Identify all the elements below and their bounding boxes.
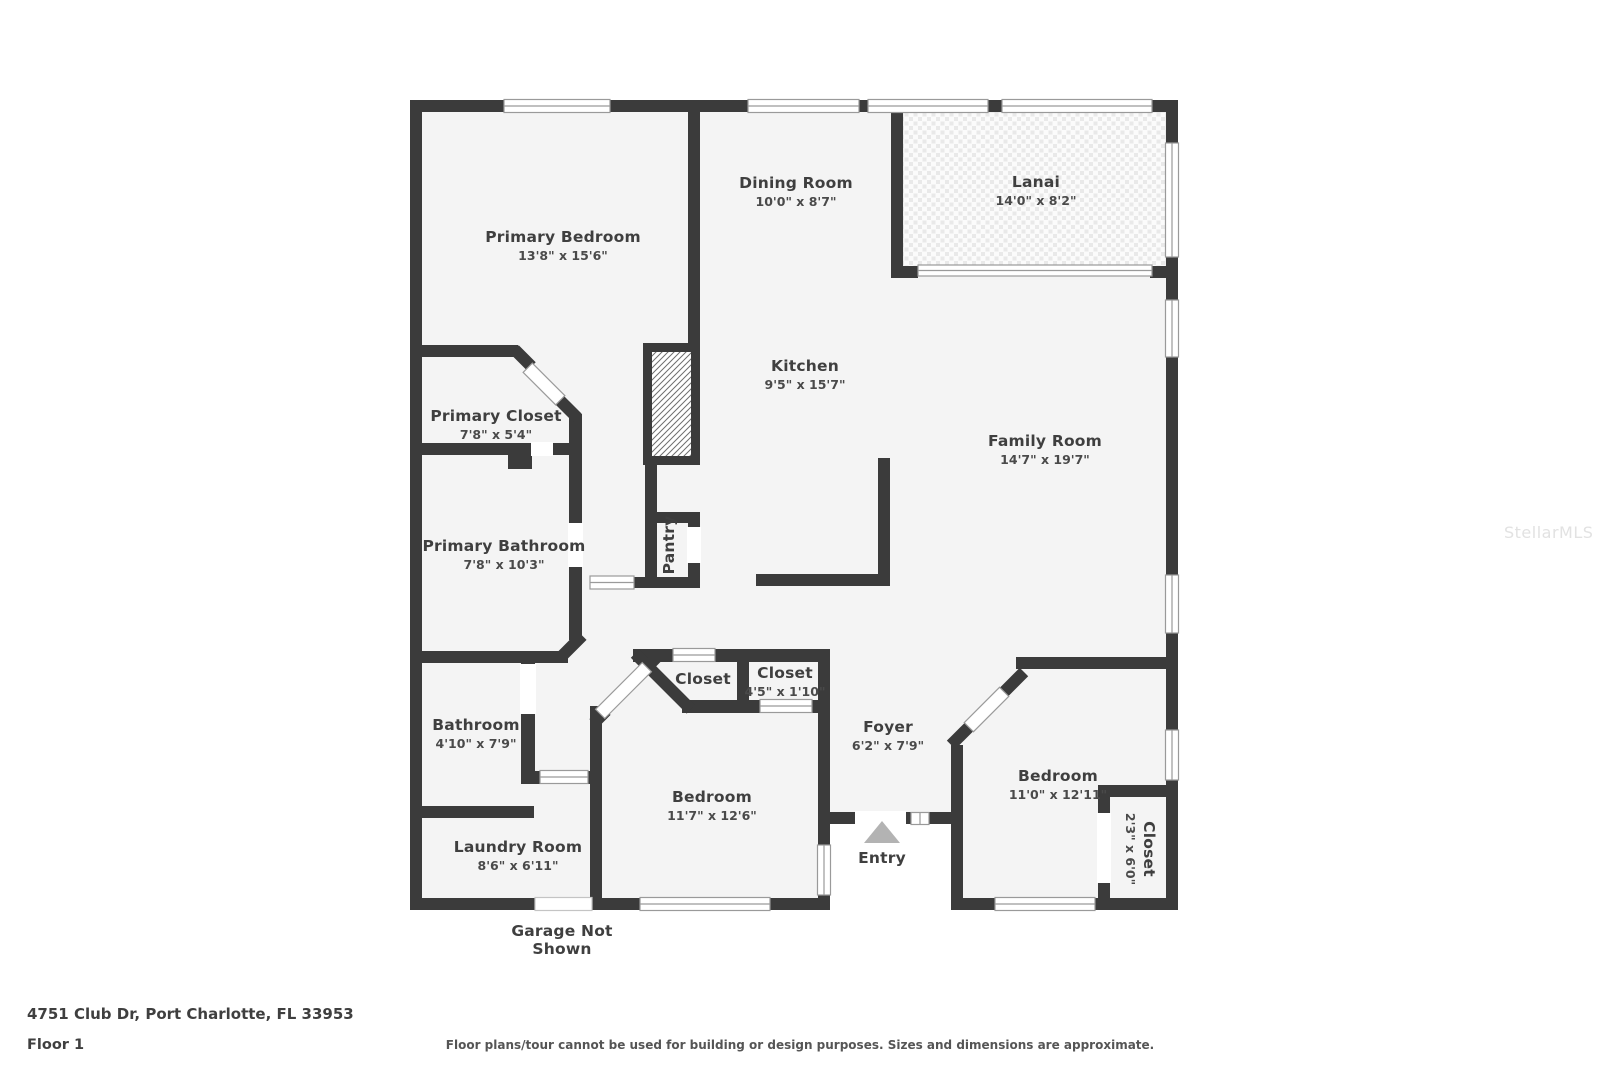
garage-note: Garage Not Shown [511,923,612,959]
room-dims: 7'8" x 10'3" [422,558,585,572]
room-label-foyer: Foyer 6'2" x 7'9" [852,719,924,753]
room-label-laundry-room: Laundry Room 8'6" x 6'11" [454,839,582,873]
hatched-box [643,343,700,465]
disclaimer-text: Floor plans/tour cannot be used for buil… [0,1038,1600,1052]
window [640,898,770,911]
room-dims: 14'7" x 19'7" [988,453,1102,467]
window [1002,100,1152,113]
room-dims: 6'2" x 7'9" [852,739,924,753]
window [1166,730,1179,780]
room-label-primary-closet: Primary Closet 7'8" x 5'4" [430,408,561,442]
room-name: Bedroom [667,789,757,807]
room-name: Bedroom [1009,768,1107,786]
room-label-primary-bedroom: Primary Bedroom 13'8" x 15'6" [485,229,641,263]
room-dims: 8'6" x 6'11" [454,859,582,873]
entry-text: Entry [858,850,906,868]
room-dims: 13'8" x 15'6" [485,249,641,263]
room-dims: 2'3" x 6'0" [1123,813,1137,885]
room-dims: 11'7" x 12'6" [667,809,757,823]
garage-note-line1: Garage Not [511,923,612,941]
room-label-closet-right: Closet 2'3" x 6'0" [1123,813,1157,885]
window [995,898,1095,911]
room-dims: 4'5" x 1'10" [745,685,826,699]
room-name: Kitchen [765,358,846,376]
room-label-primary-bathroom: Primary Bathroom 7'8" x 10'3" [422,538,585,572]
room-label-dining-room: Dining Room 10'0" x 8'7" [739,175,853,209]
room-label-bedroom-right: Bedroom 11'0" x 12'11" [1009,768,1107,802]
room-dims: 4'10" x 7'9" [432,737,519,751]
room-label-lanai: Lanai 14'0" x 8'2" [996,174,1077,208]
cased-opening [590,576,634,589]
room-name: Laundry Room [454,839,582,857]
room-name: Pantry [661,516,679,575]
room-name: Primary Bedroom [485,229,641,247]
garage-note-line2: Shown [511,941,612,959]
cased-opening [673,649,715,662]
entry-label: Entry [858,850,906,868]
room-name: Bathroom [432,717,519,735]
floor-plan-page: Primary Bedroom 13'8" x 15'6" Dining Roo… [0,0,1600,1066]
room-name: Lanai [996,174,1077,192]
stellar-mls-watermark: StellarMLS [1504,523,1593,542]
room-label-bathroom: Bathroom 4'10" x 7'9" [432,717,519,751]
room-label-family-room: Family Room 14'7" x 19'7" [988,433,1102,467]
window [748,100,859,113]
room-dims: 14'0" x 8'2" [996,194,1077,208]
window [868,100,988,113]
room-name: Family Room [988,433,1102,451]
room-label-pantry: Pantry [661,516,679,575]
room-label-bedroom-mid: Bedroom 11'7" x 12'6" [667,789,757,823]
cased-opening [760,700,812,713]
room-name: Closet [745,665,826,683]
window [504,100,610,113]
room-dims: 7'8" x 5'4" [430,428,561,442]
room-name: Closet [1139,813,1157,885]
room-dims: 9'5" x 15'7" [765,378,846,392]
room-label-closet-hall: Closet 4'5" x 1'10" [745,665,826,699]
room-dims: 11'0" x 12'11" [1009,788,1107,802]
entry-sidelight [911,813,929,825]
room-label-closet-angled: Closet [675,671,731,689]
window [1166,143,1179,257]
room-name: Primary Bathroom [422,538,585,556]
room-name: Foyer [852,719,924,737]
lanai-opening [918,265,1152,276]
room-name: Dining Room [739,175,853,193]
room-dims: 10'0" x 8'7" [739,195,853,209]
room-name: Closet [675,671,731,689]
garage-door-opening [535,898,592,911]
room-name: Primary Closet [430,408,561,426]
window [1166,575,1179,633]
window [1166,300,1179,357]
window [818,845,831,895]
room-label-kitchen: Kitchen 9'5" x 15'7" [765,358,846,392]
floor-plan-svg [0,0,1600,1066]
address-text: 4751 Club Dr, Port Charlotte, FL 33953 [27,1005,354,1023]
cased-opening [540,771,588,784]
